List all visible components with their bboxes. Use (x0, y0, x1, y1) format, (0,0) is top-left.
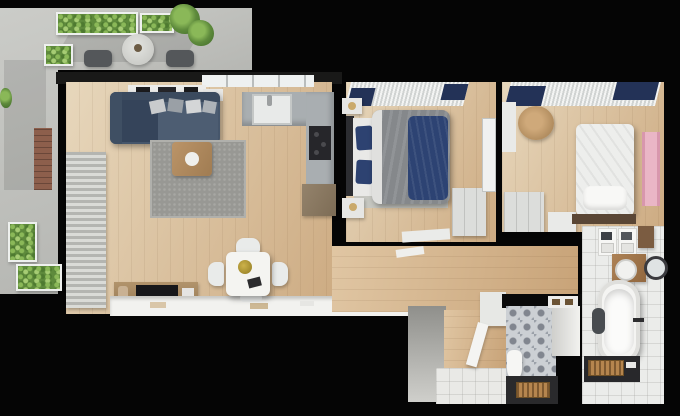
terrace-door-window (202, 75, 314, 87)
burner (321, 142, 326, 147)
faucet (267, 95, 272, 106)
wc-rug (516, 382, 550, 398)
dining-table (226, 252, 270, 296)
brick-wall (34, 128, 52, 190)
planter-box (56, 12, 138, 35)
table-lamp (348, 102, 356, 110)
wooden-box (638, 226, 654, 248)
table-book (247, 277, 262, 289)
planter-box (16, 264, 62, 291)
basin-shelf (612, 254, 646, 282)
hanging-plant (188, 20, 214, 46)
bath-rug (588, 360, 624, 376)
bed-sheet (372, 110, 382, 204)
tub-faucet (633, 318, 644, 322)
towel-shelf (598, 228, 617, 256)
pink-runner (642, 132, 660, 206)
navy-throw (408, 116, 448, 200)
nightstand (342, 98, 362, 114)
planter-box (140, 13, 174, 33)
terrace-chair (84, 50, 112, 67)
towel (601, 243, 614, 253)
floor-plan-render (0, 0, 680, 416)
nightstand (342, 198, 364, 218)
table-decor (134, 44, 142, 52)
sofa-armrest (110, 92, 122, 144)
cooktop (309, 126, 331, 160)
blind-navy-panel (441, 84, 469, 100)
paper (250, 303, 268, 309)
wardrobe (504, 192, 544, 232)
paper (150, 302, 166, 308)
towel (621, 243, 634, 253)
navy-pillow (355, 160, 373, 185)
dining-chair (272, 262, 288, 286)
pillow (583, 186, 627, 210)
master-window-blinds (345, 82, 469, 106)
wardrobe (452, 188, 486, 236)
foot-bench (572, 214, 636, 224)
sofa-cushion (185, 99, 201, 113)
entrance-tile-floor (436, 368, 506, 404)
console-decor (182, 288, 194, 296)
centerpiece (238, 260, 252, 274)
paper (300, 301, 314, 306)
second-window-blinds (505, 82, 661, 106)
wall-shelf (502, 102, 516, 152)
single-bed (576, 124, 634, 216)
towel (621, 232, 632, 240)
washbasin (615, 259, 637, 281)
frame (565, 299, 573, 305)
table-lamp (349, 203, 357, 211)
kitchen-cabinet (302, 184, 336, 216)
burner (314, 150, 319, 155)
round-chair (518, 106, 554, 140)
frame (552, 299, 560, 305)
sofa-cushion (167, 98, 184, 113)
terrace-chair (166, 50, 194, 67)
round-mirror (644, 256, 668, 280)
sofa-cushion (202, 100, 217, 114)
wc-mirror-frames (548, 296, 578, 308)
towel (601, 232, 612, 240)
radiator-panel (66, 152, 106, 308)
blind-navy-panel (613, 82, 659, 100)
corner-sofa (110, 92, 220, 144)
burner (314, 132, 319, 137)
table-tray (185, 152, 199, 166)
mirror (482, 118, 496, 192)
double-bed (372, 110, 450, 204)
planter-box (44, 44, 73, 66)
plant (0, 88, 12, 108)
planter-box (8, 222, 37, 262)
dining-chair (208, 262, 224, 286)
bathtub-basin (604, 289, 634, 355)
wc-vanity-wall (552, 306, 580, 356)
coffee-table (172, 142, 212, 176)
towel-shelf (618, 228, 637, 256)
kitchen-sink (252, 94, 292, 125)
counter-item (626, 362, 636, 368)
bath-towel (592, 308, 605, 334)
